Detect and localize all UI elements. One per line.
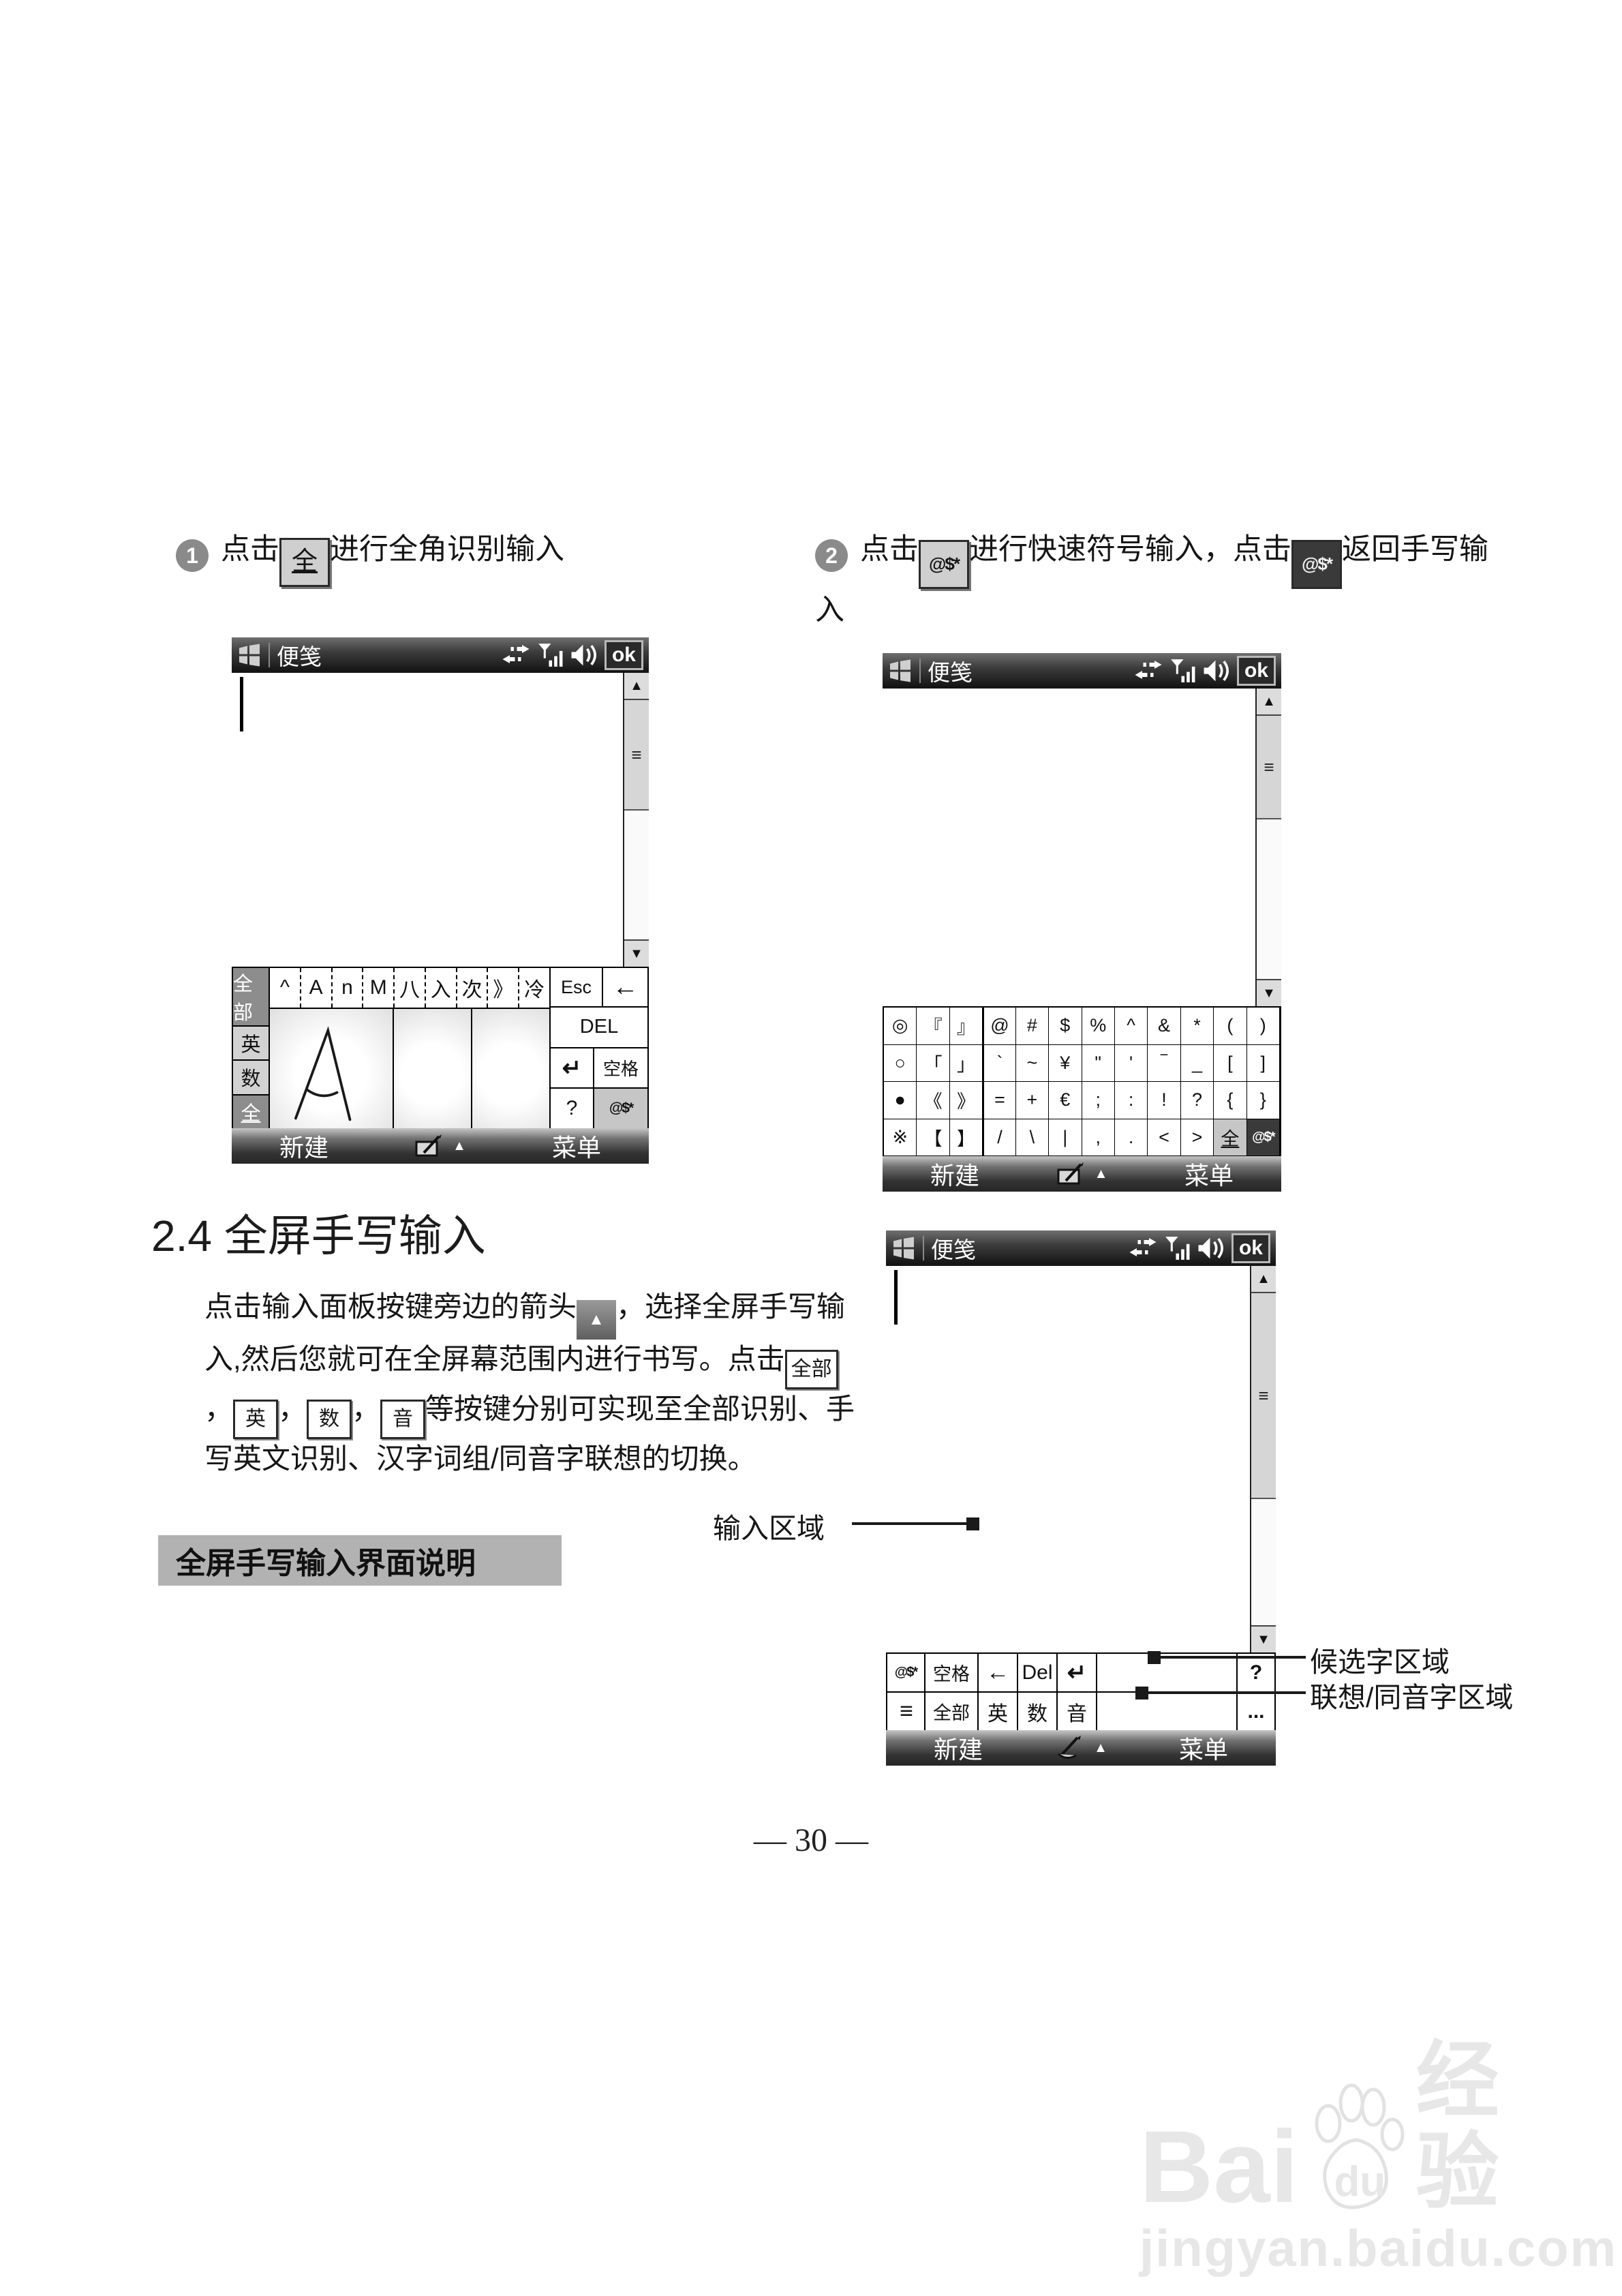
pen-panel-icon — [414, 1134, 443, 1158]
key-《[interactable]: 《 — [917, 1082, 949, 1119]
space-key[interactable]: 空格 — [925, 1654, 979, 1691]
screenshot-handwriting-input: 便笺 ok ▲ ≡ ▼ 全部英数全 ^AnM八入次》冷 — [232, 637, 649, 1164]
softkey-menu[interactable]: 菜单 — [1184, 1156, 1234, 1192]
key-][interactable]: ] — [1247, 1045, 1280, 1083]
key-:[interactable]: : — [1115, 1082, 1148, 1119]
key-}[interactable]: } — [1247, 1082, 1280, 1119]
step-1-text-before: 点击 — [221, 533, 279, 566]
baidu-watermark: Bai du 经验 jingyan.baidu.com — [1139, 2035, 1562, 2278]
key-€[interactable]: € — [1049, 1082, 1082, 1119]
handwritten-stroke — [270, 1012, 393, 1125]
windows-start-icon[interactable] — [891, 1236, 916, 1260]
key-】[interactable]: 】 — [950, 1119, 983, 1157]
input-panel-toggle[interactable]: ▲ — [414, 1134, 466, 1158]
page-number: — 30 — — [0, 1822, 1622, 1859]
scroll-grip-icon: ≡ — [1258, 1385, 1268, 1406]
text-cursor — [894, 1270, 898, 1325]
scroll-thumb[interactable]: ≡ — [1257, 716, 1281, 819]
enter-key[interactable]: ↵ — [1058, 1654, 1097, 1691]
watermark-brand-cn: 经验 — [1416, 2035, 1562, 2218]
key-![interactable]: ! — [1148, 1082, 1180, 1119]
key-次[interactable]: 次 — [457, 968, 489, 1008]
all-recognition-key[interactable]: 全部 — [785, 1350, 838, 1389]
key-n[interactable]: n — [333, 968, 364, 1008]
status-icons — [502, 644, 598, 667]
key-八[interactable]: 八 — [395, 968, 426, 1008]
input-panel-arrow-icon[interactable]: ▲ — [1094, 1740, 1107, 1756]
pda-titlebar: 便笺 ok — [232, 637, 649, 673]
del-key[interactable]: Del — [1018, 1654, 1058, 1691]
key-\[interactable]: \ — [1016, 1119, 1049, 1157]
softkey-new[interactable]: 新建 — [930, 1156, 979, 1192]
signal-icon — [1163, 1237, 1191, 1260]
input-area-leader-line — [852, 1522, 969, 1525]
scroll-track[interactable] — [1251, 1499, 1276, 1625]
all-recognition-key[interactable]: 全部 — [925, 1693, 979, 1730]
key-_[interactable]: _ — [1181, 1045, 1214, 1083]
key-全[interactable]: 全 — [233, 1096, 269, 1128]
key-^[interactable]: ^ — [270, 968, 301, 1008]
baidu-paw-icon: du — [1302, 2081, 1411, 2218]
key-』[interactable]: 』 — [950, 1008, 983, 1045]
scroll-thumb[interactable]: ≡ — [1251, 1293, 1276, 1499]
scroll-track[interactable] — [1257, 819, 1281, 979]
backspace-key[interactable]: ← — [603, 968, 647, 1006]
scroll-up-button[interactable]: ▲ — [624, 673, 649, 700]
connectivity-icon — [502, 645, 530, 665]
key-M[interactable]: M — [363, 968, 395, 1008]
app-title: 便笺 — [277, 639, 495, 671]
key-'[interactable]: ' — [1115, 1045, 1148, 1083]
titlebar-separator — [923, 1236, 924, 1260]
softkey-new[interactable]: 新建 — [934, 1730, 983, 1766]
association-char-area[interactable] — [1097, 1693, 1238, 1730]
volume-icon — [1203, 659, 1230, 682]
key-`[interactable]: ` — [983, 1045, 1015, 1083]
status-icons — [1135, 659, 1230, 682]
symbol-mode-key[interactable]: @$* — [594, 1089, 647, 1128]
backspace-key[interactable]: ← — [979, 1654, 1018, 1691]
softkey-menu[interactable]: 菜单 — [552, 1128, 601, 1164]
windows-start-icon[interactable] — [237, 643, 262, 667]
key-『[interactable]: 『 — [917, 1008, 949, 1045]
scroll-grip-icon: ≡ — [631, 744, 641, 766]
input-area-marker — [966, 1517, 979, 1530]
key-.[interactable]: . — [1115, 1119, 1148, 1157]
pinyin-key[interactable]: 音 — [1058, 1693, 1097, 1730]
key-》[interactable]: 》 — [950, 1082, 983, 1119]
status-icons — [1129, 1237, 1225, 1260]
step-1: 1点击全进行全角识别输入 — [176, 528, 762, 587]
manual-page: 1点击全进行全角识别输入 2点击@$*进行快速符号输入，点击@$*返回手写输入 … — [0, 0, 1622, 2296]
key-?[interactable]: ? — [1181, 1082, 1214, 1119]
writing-box-2[interactable] — [394, 1009, 472, 1128]
scroll-down-button[interactable]: ▼ — [1257, 979, 1281, 1006]
step-1-badge: 1 — [176, 539, 209, 572]
scroll-thumb[interactable]: ≡ — [624, 700, 649, 811]
key-¥[interactable]: ¥ — [1049, 1045, 1082, 1083]
step-2: 2点击@$*进行快速符号输入，点击@$*返回手写输入 — [815, 528, 1517, 631]
symbol-key[interactable]: @$* — [919, 540, 969, 589]
input-panel-toggle[interactable]: ▲ — [1056, 1162, 1108, 1186]
comma-1: ， — [204, 1393, 233, 1425]
note-edit-area[interactable]: ▲ ≡ ▼ — [232, 673, 649, 967]
key-{[interactable]: { — [1214, 1082, 1246, 1119]
step-2-text-before: 点击 — [860, 533, 919, 566]
key-([interactable]: ( — [1214, 1008, 1246, 1045]
key-@$*[interactable]: @$* — [1247, 1119, 1280, 1157]
pen-panel-icon — [1056, 1162, 1085, 1186]
key-冷[interactable]: 冷 — [519, 968, 549, 1008]
writing-boxes — [270, 1008, 549, 1128]
note-edit-area[interactable]: ▲ ≡ ▼ — [883, 689, 1281, 1006]
pda-titlebar: 便笺 ok — [886, 1230, 1276, 1266]
space-key[interactable]: 空格 — [594, 1048, 647, 1088]
fullscreen-write-icon — [1054, 1735, 1084, 1761]
scrollbar[interactable]: ▲ ≡ ▼ — [1250, 1266, 1276, 1652]
more-key[interactable]: ... — [1238, 1693, 1274, 1730]
assoc-area-leader-line — [1146, 1691, 1306, 1694]
titlebar-separator — [919, 659, 921, 683]
scroll-grip-icon: ≡ — [1264, 757, 1274, 778]
enter-key[interactable]: ↵ — [551, 1048, 594, 1088]
connectivity-icon — [1135, 661, 1162, 681]
scroll-down-button[interactable]: ▼ — [624, 939, 649, 967]
key-A[interactable]: A — [301, 968, 333, 1008]
key-,[interactable]: , — [1082, 1119, 1115, 1157]
key-※[interactable]: ※ — [884, 1119, 917, 1157]
command-bar: 新建 ▲ 菜单 — [883, 1156, 1281, 1192]
key-*[interactable]: * — [1181, 1008, 1214, 1045]
english-key[interactable]: 英 — [233, 1400, 278, 1439]
key-#[interactable]: # — [1016, 1008, 1049, 1045]
candidate-list-icon[interactable]: ≡ — [887, 1693, 925, 1730]
number-key[interactable]: 数 — [307, 1400, 352, 1439]
screenshot-fullscreen-handwriting: 便笺 ok ▲ ≡ ▼ @$* 空格 ← Del ↵ ? — [886, 1230, 1276, 1766]
key-;[interactable]: ; — [1082, 1082, 1115, 1119]
key-●[interactable]: ● — [884, 1082, 917, 1119]
step-1-text-after: 进行全角识别输入 — [330, 533, 564, 566]
key-~[interactable]: ~ — [1016, 1045, 1049, 1083]
key-英[interactable]: 英 — [233, 1027, 269, 1061]
app-title: 便笺 — [931, 1232, 1122, 1265]
candidate-area-label: 候选字区域 — [1310, 1639, 1450, 1680]
writing-box-3[interactable] — [472, 1009, 549, 1128]
key-‾[interactable]: ‾ — [1148, 1045, 1180, 1083]
signal-icon — [536, 644, 564, 667]
help-key[interactable]: ? — [551, 1089, 594, 1128]
candidate-area-leader-line — [1159, 1656, 1306, 1659]
titlebar-separator — [269, 643, 270, 667]
scrollbar[interactable]: ▲ ≡ ▼ — [623, 673, 649, 967]
symbol-keyboard: ◎『』@#$%^&*()○「」`~¥"'‾_[]●《》=+€;:!?{}※【】/… — [883, 1006, 1281, 1156]
key-&[interactable]: & — [1148, 1008, 1180, 1045]
key-○[interactable]: ○ — [884, 1045, 917, 1083]
handwriting-main: ^AnM八入次》冷 — [270, 968, 549, 1128]
ok-button[interactable]: ok — [1231, 1233, 1270, 1263]
section-paragraph: 点击输入面板按键旁边的箭头▲，选择全屏手写输入,然后您就可在全屏幕范围内进行书写… — [204, 1287, 859, 1479]
windows-start-icon[interactable] — [888, 659, 913, 683]
handwriting-input-panel: 全部英数全 ^AnM八入次》冷 Esc ← — [232, 967, 649, 1128]
panel-arrow-key[interactable]: ▲ — [577, 1300, 616, 1340]
screenshot-symbol-input: 便笺 ok ▲ ≡ ▼ ◎『』@#$%^&*()○「」`~¥"'‾_[]●《》=… — [883, 653, 1281, 1192]
watermark-du: du — [1334, 2158, 1386, 2206]
symbol-mode-key[interactable]: @$* — [887, 1654, 925, 1691]
input-panel-arrow-icon[interactable]: ▲ — [1095, 1166, 1108, 1182]
assoc-area-label: 联想/同音字区域 — [1310, 1674, 1513, 1715]
writing-box-1[interactable] — [270, 1009, 394, 1128]
connectivity-icon — [1129, 1238, 1157, 1258]
key-◎[interactable]: ◎ — [884, 1008, 917, 1045]
watermark-url: jingyan.baidu.com — [1139, 2219, 1562, 2278]
softkey-new[interactable]: 新建 — [279, 1128, 328, 1164]
association-row: ≡ 全部 英 数 音 ... — [886, 1691, 1276, 1730]
scroll-track[interactable] — [624, 811, 649, 939]
help-key[interactable]: ? — [1238, 1654, 1274, 1691]
key-数[interactable]: 数 — [233, 1061, 269, 1095]
del-key[interactable]: DEL — [551, 1008, 647, 1047]
ok-button[interactable]: ok — [1237, 656, 1276, 686]
scroll-up-button[interactable]: ▲ — [1257, 689, 1281, 716]
candidate-row: ^AnM八入次》冷 — [270, 968, 549, 1008]
scroll-down-button[interactable]: ▼ — [1251, 1625, 1276, 1652]
key-^[interactable]: ^ — [1115, 1008, 1148, 1045]
input-area-label: 输入区域 — [713, 1505, 825, 1546]
esc-key[interactable]: Esc — [551, 968, 603, 1006]
key-+[interactable]: + — [1016, 1082, 1049, 1119]
recognition-mode-keys: 全部英数全 — [233, 968, 270, 1128]
watermark-brand-left: Bai — [1139, 2115, 1298, 2218]
key-)[interactable]: ) — [1247, 1008, 1280, 1045]
key-「[interactable]: 「 — [917, 1045, 949, 1083]
input-panel-toggle[interactable]: ▲ — [1054, 1735, 1107, 1761]
command-bar: 新建 ▲ 菜单 — [232, 1128, 649, 1164]
volume-icon — [1197, 1237, 1225, 1260]
key-|[interactable]: | — [1049, 1119, 1082, 1157]
input-panel-arrow-icon[interactable]: ▲ — [453, 1138, 466, 1154]
key-【[interactable]: 【 — [917, 1119, 949, 1157]
softkey-menu[interactable]: 菜单 — [1179, 1730, 1228, 1766]
volume-icon — [570, 644, 598, 667]
comma-3: ， — [352, 1393, 380, 1425]
symbol-key-active[interactable]: @$* — [1291, 540, 1342, 589]
command-bar: 新建 ▲ 菜单 — [886, 1730, 1276, 1766]
para-text-1: 点击输入面板按键旁边的箭头 — [204, 1290, 577, 1323]
fullwidth-key[interactable]: 全 — [279, 538, 330, 587]
pda-titlebar: 便笺 ok — [883, 653, 1281, 689]
candidate-char-area[interactable] — [1097, 1654, 1238, 1691]
ok-button[interactable]: ok — [605, 640, 643, 670]
english-key[interactable]: 英 — [979, 1693, 1018, 1730]
signal-icon — [1169, 659, 1196, 682]
panel-function-keys: Esc ← DEL ↵ 空格 ? @$* — [549, 968, 647, 1128]
key-全[interactable]: 全 — [1214, 1119, 1246, 1157]
step-2-text-mid: 进行快速符号输入，点击 — [969, 533, 1291, 566]
app-title: 便笺 — [928, 654, 1128, 687]
number-key[interactable]: 数 — [1018, 1693, 1058, 1730]
key-@[interactable]: @ — [983, 1008, 1015, 1045]
subsection-label: 全屏手写输入界面说明 — [158, 1535, 562, 1586]
key-"[interactable]: " — [1082, 1045, 1115, 1083]
key-=[interactable]: = — [983, 1082, 1015, 1119]
scroll-up-button[interactable]: ▲ — [1251, 1266, 1276, 1293]
key-<[interactable]: < — [1148, 1119, 1180, 1157]
key->[interactable]: > — [1181, 1119, 1214, 1157]
key-全部[interactable]: 全部 — [233, 968, 269, 1027]
key-》[interactable]: 》 — [488, 968, 519, 1008]
scrollbar[interactable]: ▲ ≡ ▼ — [1255, 689, 1281, 1006]
pinyin-key[interactable]: 音 — [380, 1400, 425, 1439]
fullscreen-input-area[interactable]: ▲ ≡ ▼ — [886, 1266, 1276, 1652]
key-/[interactable]: / — [983, 1119, 1015, 1157]
key-$[interactable]: $ — [1049, 1008, 1082, 1045]
step-2-badge: 2 — [815, 539, 848, 572]
section-heading: 2.4 全屏手写输入 — [151, 1201, 486, 1264]
text-cursor — [240, 677, 243, 731]
comma-2: ， — [278, 1393, 307, 1425]
key-」[interactable]: 」 — [950, 1045, 983, 1083]
key-%[interactable]: % — [1082, 1008, 1115, 1045]
key-入[interactable]: 入 — [426, 968, 457, 1008]
key-[[interactable]: [ — [1214, 1045, 1246, 1083]
